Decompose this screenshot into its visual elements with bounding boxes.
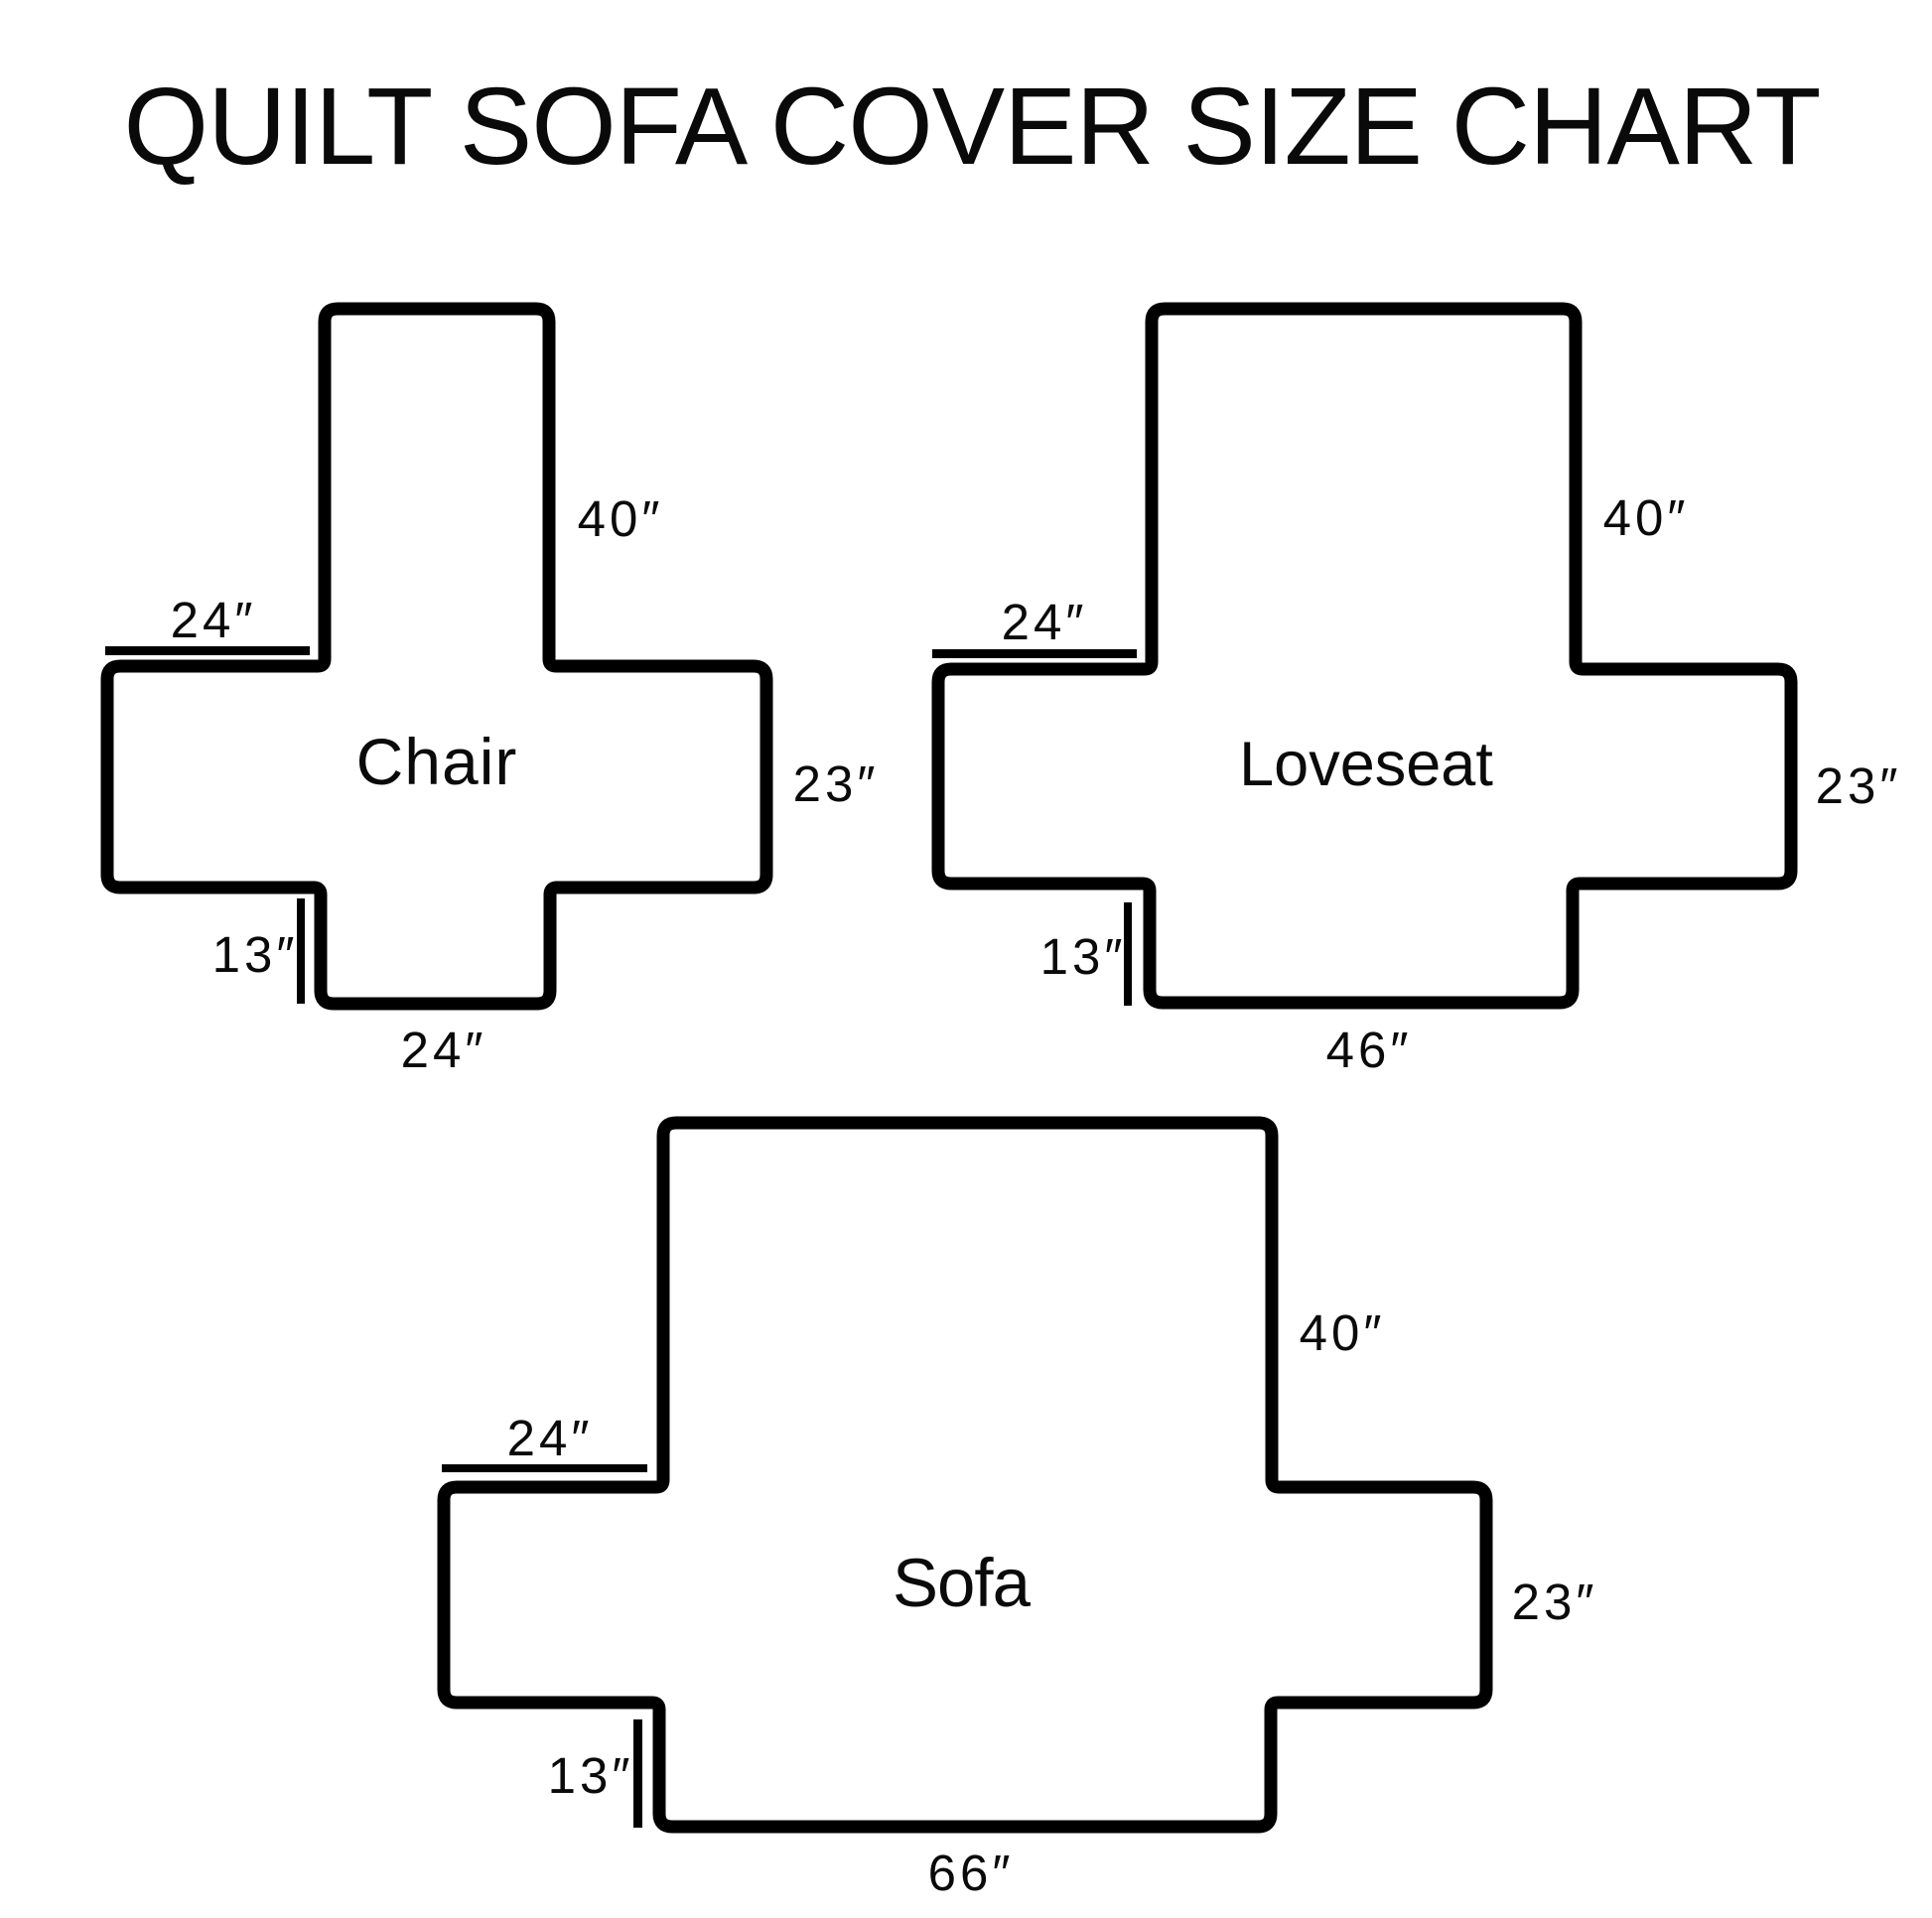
- svg-text:13″: 13″: [548, 1747, 634, 1804]
- svg-text:23″: 23″: [1512, 1574, 1598, 1630]
- svg-text:Loveseat: Loveseat: [1239, 730, 1493, 799]
- svg-text:40″: 40″: [1603, 489, 1690, 546]
- svg-text:Sofa: Sofa: [893, 1545, 1032, 1621]
- svg-text:40″: 40″: [1300, 1304, 1386, 1361]
- svg-text:13″: 13″: [1040, 928, 1127, 985]
- svg-text:24″: 24″: [1002, 594, 1088, 650]
- svg-text:24″: 24″: [171, 592, 257, 648]
- svg-text:Chair: Chair: [356, 725, 518, 798]
- svg-text:13″: 13″: [212, 926, 299, 983]
- svg-text:24″: 24″: [507, 1410, 594, 1466]
- svg-text:24″: 24″: [401, 1022, 487, 1078]
- svg-text:66″: 66″: [928, 1845, 1015, 1901]
- svg-text:46″: 46″: [1326, 1022, 1413, 1078]
- svg-text:23″: 23″: [1816, 757, 1902, 814]
- svg-text:QUILT SOFA COVER SIZE CHART: QUILT SOFA COVER SIZE CHART: [124, 66, 1821, 188]
- svg-text:23″: 23″: [793, 755, 880, 812]
- svg-text:40″: 40″: [578, 490, 664, 547]
